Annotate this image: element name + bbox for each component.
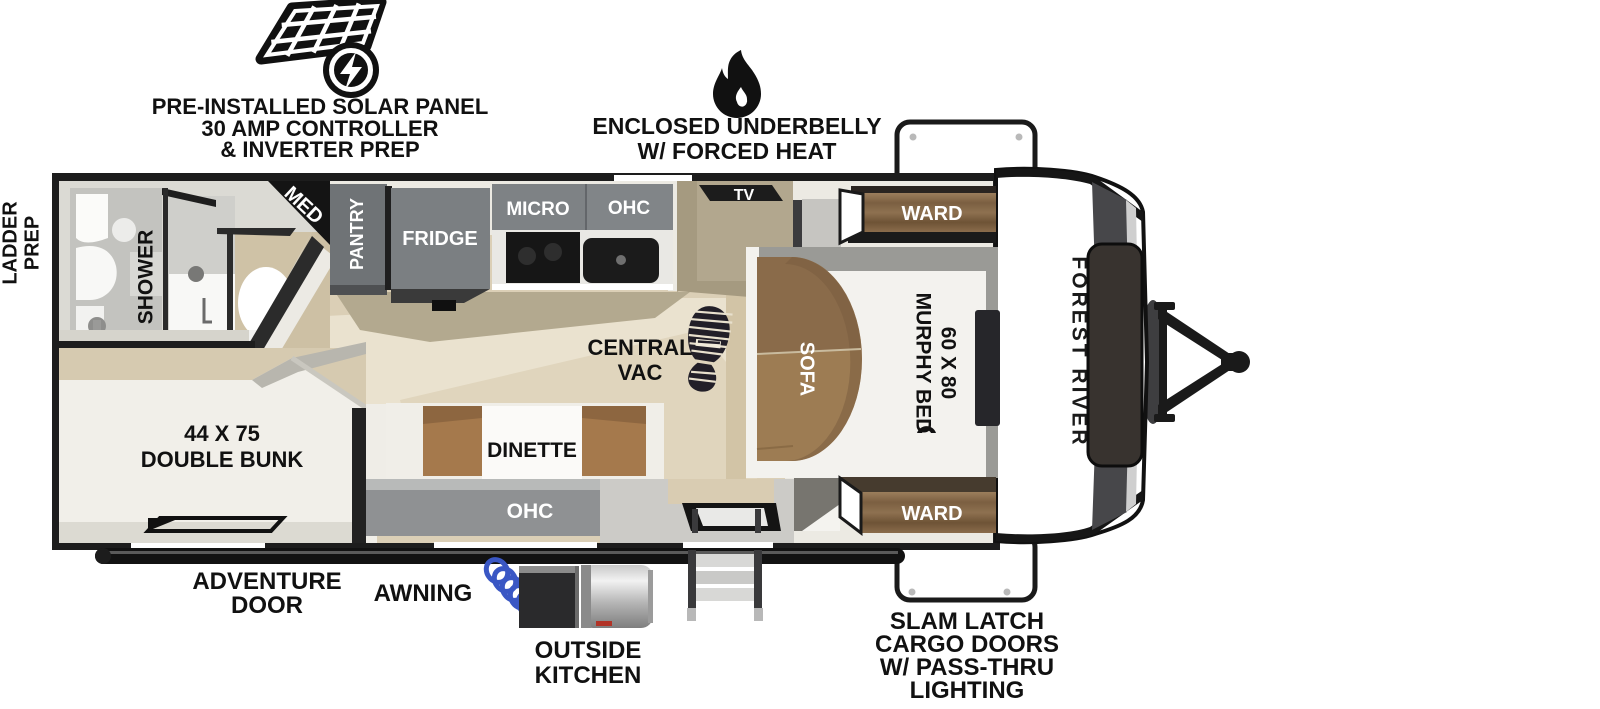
svg-text:ENCLOSED UNDERBELLY: ENCLOSED UNDERBELLY [592,113,881,139]
svg-text:44 X 75: 44 X 75 [184,421,260,446]
svg-text:PANTRY: PANTRY [347,198,367,270]
svg-text:OHC: OHC [608,198,651,219]
svg-text:& INVERTER PREP: & INVERTER PREP [220,137,419,162]
svg-text:TV: TV [734,187,755,204]
svg-text:PREP: PREP [21,216,43,270]
svg-text:KITCHEN: KITCHEN [535,662,642,689]
svg-text:WARD: WARD [901,203,962,225]
svg-text:VAC: VAC [618,360,663,385]
svg-text:DOOR: DOOR [231,592,303,619]
svg-text:MICRO: MICRO [506,199,569,220]
svg-text:FRIDGE: FRIDGE [402,228,478,250]
svg-text:SHOWER: SHOWER [135,230,158,325]
svg-text:CENTRAL: CENTRAL [587,335,692,360]
svg-text:OHC: OHC [507,500,554,523]
svg-text:WARD: WARD [901,503,962,525]
svg-text:DINETTE: DINETTE [487,439,577,462]
svg-text:OUTSIDE: OUTSIDE [535,637,642,664]
svg-text:DOUBLE BUNK: DOUBLE BUNK [141,447,304,472]
svg-text:LIGHTING: LIGHTING [910,677,1025,704]
svg-text:MURPHY BED: MURPHY BED [911,293,934,434]
svg-text:60 X 80: 60 X 80 [936,327,959,399]
svg-text:AWNING: AWNING [374,580,473,607]
svg-text:ADVENTURE: ADVENTURE [192,568,341,595]
svg-text:SOFA: SOFA [796,342,818,396]
svg-text:LADDER: LADDER [0,201,21,285]
svg-text:W/ FORCED HEAT: W/ FORCED HEAT [638,138,837,164]
